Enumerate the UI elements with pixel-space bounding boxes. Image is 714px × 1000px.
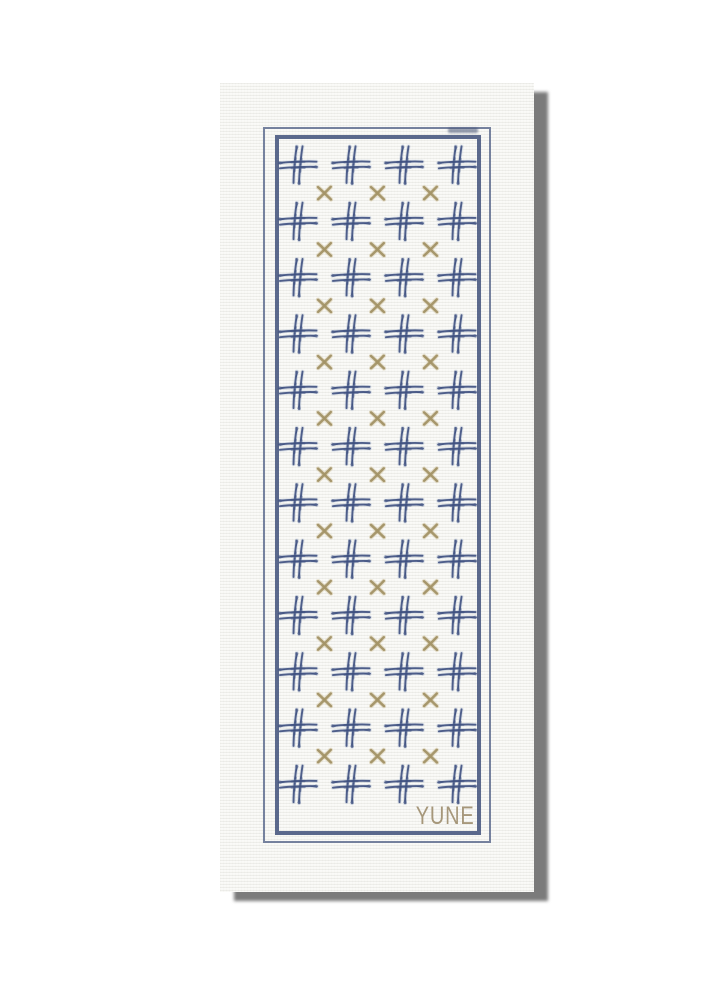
mat-border-inner bbox=[275, 135, 481, 835]
product-scene: YUNE bbox=[0, 0, 714, 1000]
mat-border-outer bbox=[263, 127, 491, 843]
brand-logo: YUNE bbox=[415, 804, 474, 829]
border-ink-smudge bbox=[448, 128, 478, 133]
page-background: { "scene": { "description": "Product pho… bbox=[0, 0, 714, 1000]
yoga-mat: YUNE bbox=[220, 83, 534, 892]
